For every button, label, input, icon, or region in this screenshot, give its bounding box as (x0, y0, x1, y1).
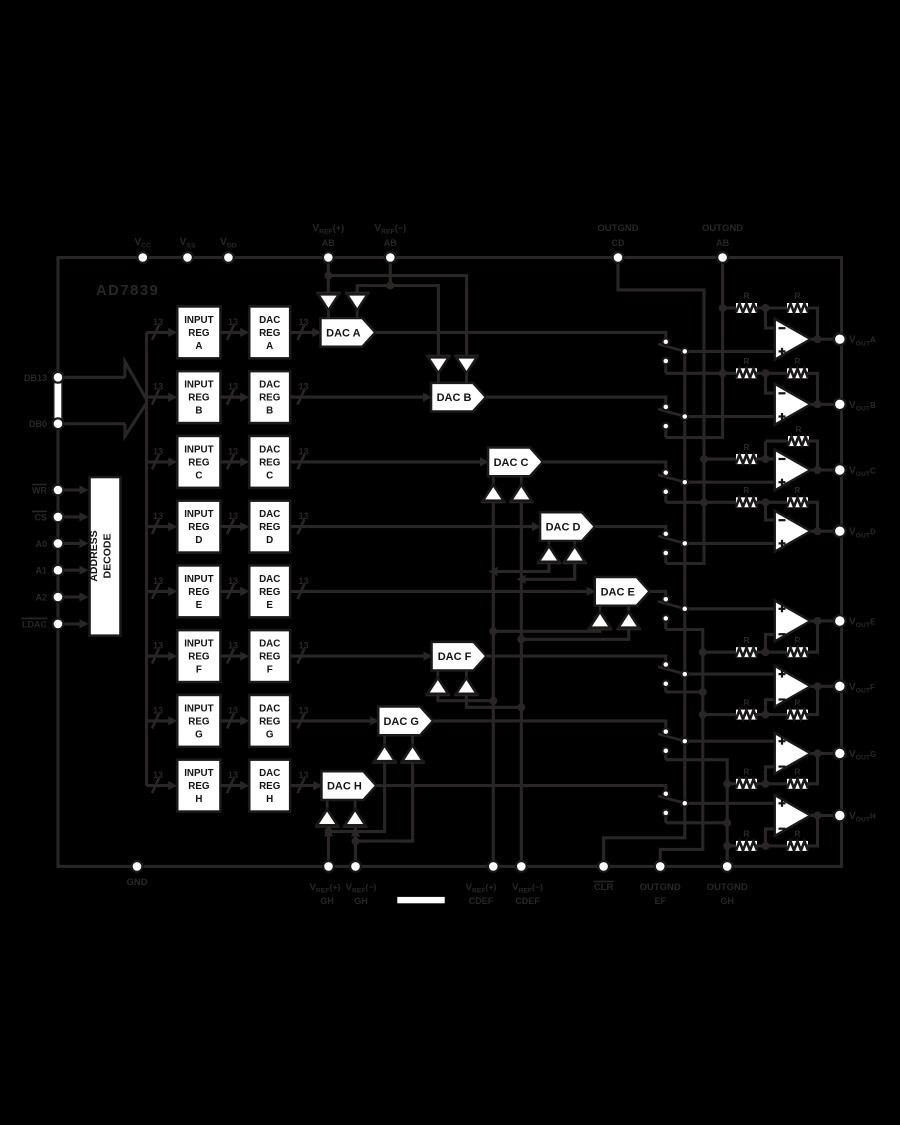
svg-text:DAC A: DAC A (326, 327, 360, 339)
svg-text:REG: REG (188, 781, 210, 792)
svg-text:E: E (196, 600, 203, 611)
svg-text:DAC: DAC (259, 315, 280, 326)
svg-text:13: 13 (153, 317, 163, 327)
svg-text:REG: REG (188, 522, 210, 533)
svg-text:13: 13 (228, 317, 238, 327)
svg-text:CS: CS (34, 512, 47, 522)
svg-text:R: R (743, 291, 749, 301)
svg-text:DAC G: DAC G (383, 716, 418, 728)
svg-text:REG: REG (259, 522, 281, 533)
svg-text:R: R (794, 767, 800, 777)
svg-text:DAC C: DAC C (494, 457, 529, 469)
svg-text:A1: A1 (35, 566, 47, 576)
svg-text:DAC: DAC (259, 444, 280, 455)
svg-text:R: R (795, 424, 801, 434)
svg-text:INPUT: INPUT (184, 703, 213, 714)
svg-text:ADDRESS: ADDRESS (88, 530, 100, 581)
svg-text:R: R (794, 485, 800, 495)
svg-text:DB13: DB13 (24, 373, 47, 383)
svg-text:AD7839: AD7839 (96, 283, 159, 299)
svg-text:REG: REG (188, 457, 210, 468)
svg-text:REG: REG (188, 652, 210, 663)
svg-text:REG: REG (259, 328, 281, 339)
svg-text:13: 13 (153, 511, 163, 521)
svg-text:REG: REG (259, 716, 281, 727)
svg-text:REG: REG (259, 457, 281, 468)
svg-text:GH: GH (720, 896, 734, 906)
svg-text:D: D (195, 535, 202, 546)
svg-text:G: G (266, 729, 274, 740)
svg-text:A2: A2 (35, 593, 47, 603)
svg-text:13: 13 (228, 446, 238, 456)
svg-text:OUTGND: OUTGND (702, 223, 743, 234)
svg-text:WR: WR (32, 486, 47, 496)
svg-text:INPUT: INPUT (184, 639, 213, 650)
svg-text:CD: CD (612, 238, 625, 248)
svg-text:13: 13 (298, 641, 308, 651)
svg-text:AB: AB (384, 238, 397, 248)
svg-text:INPUT: INPUT (184, 768, 213, 779)
svg-text:A0: A0 (35, 539, 47, 549)
svg-text:H: H (195, 794, 202, 805)
svg-text:G: G (195, 729, 203, 740)
svg-text:DAC E: DAC E (601, 586, 635, 598)
svg-text:13: 13 (228, 382, 238, 392)
svg-text:DAC D: DAC D (546, 522, 581, 534)
svg-text:DAC: DAC (259, 574, 280, 585)
svg-text:INPUT: INPUT (184, 380, 213, 391)
svg-text:GH: GH (354, 896, 368, 906)
svg-text:13: 13 (298, 770, 308, 780)
svg-text:REG: REG (259, 652, 281, 663)
svg-text:GND: GND (126, 877, 147, 888)
svg-text:D: D (266, 535, 273, 546)
svg-text:13: 13 (298, 511, 308, 521)
svg-text:DAC B: DAC B (437, 392, 472, 404)
svg-text:REG: REG (259, 587, 281, 598)
svg-text:H: H (266, 794, 273, 805)
svg-text:A: A (266, 341, 273, 352)
svg-text:INPUT: INPUT (184, 574, 213, 585)
svg-text:REG: REG (188, 716, 210, 727)
svg-text:13: 13 (298, 576, 308, 586)
svg-text:CDEF: CDEF (515, 896, 540, 906)
svg-text:R: R (743, 767, 749, 777)
svg-text:F: F (196, 665, 202, 676)
svg-text:13: 13 (153, 770, 163, 780)
svg-text:REG: REG (188, 393, 210, 404)
svg-text:13: 13 (228, 511, 238, 521)
svg-text:DAC H: DAC H (327, 781, 362, 793)
svg-text:13: 13 (153, 446, 163, 456)
svg-text:AB: AB (716, 238, 729, 248)
svg-text:13: 13 (153, 382, 163, 392)
svg-text:13: 13 (228, 705, 238, 715)
svg-text:B: B (195, 406, 202, 417)
svg-text:R: R (743, 485, 749, 495)
svg-text:R: R (743, 697, 749, 707)
svg-text:DAC: DAC (259, 703, 280, 714)
svg-text:C: C (195, 470, 202, 481)
svg-text:R: R (743, 829, 749, 839)
svg-text:13: 13 (228, 770, 238, 780)
svg-text:R: R (743, 442, 749, 452)
svg-text:R: R (794, 635, 800, 645)
svg-text:OUTGND: OUTGND (640, 882, 681, 893)
svg-text:13: 13 (298, 446, 308, 456)
svg-text:INPUT: INPUT (184, 509, 213, 520)
svg-text:13: 13 (298, 382, 308, 392)
svg-text:OUTGND: OUTGND (597, 223, 638, 234)
svg-text:DAC: DAC (259, 380, 280, 391)
svg-text:DAC: DAC (259, 509, 280, 520)
svg-text:13: 13 (153, 576, 163, 586)
svg-text:REG: REG (259, 393, 281, 404)
svg-text:AB: AB (322, 238, 335, 248)
svg-text:LDAC: LDAC (22, 619, 47, 629)
svg-text:CDEF: CDEF (469, 896, 494, 906)
svg-text:DB0: DB0 (29, 419, 47, 429)
svg-text:13: 13 (228, 641, 238, 651)
svg-text:B: B (266, 406, 273, 417)
svg-text:REG: REG (259, 781, 281, 792)
svg-text:INPUT: INPUT (184, 315, 213, 326)
svg-text:A: A (195, 341, 202, 352)
svg-text:R: R (794, 829, 800, 839)
svg-text:DAC: DAC (259, 768, 280, 779)
svg-text:R: R (743, 356, 749, 366)
svg-text:13: 13 (153, 705, 163, 715)
svg-text:13: 13 (153, 641, 163, 651)
svg-text:INPUT: INPUT (184, 444, 213, 455)
svg-text:R: R (794, 291, 800, 301)
svg-text:R: R (794, 697, 800, 707)
svg-text:13: 13 (298, 705, 308, 715)
svg-text:DAC F: DAC F (438, 651, 472, 663)
svg-text:13: 13 (228, 576, 238, 586)
svg-text:E: E (266, 600, 273, 611)
svg-text:13: 13 (298, 317, 308, 327)
svg-text:REG: REG (188, 328, 210, 339)
svg-text:OUTGND: OUTGND (707, 882, 748, 893)
svg-text:C: C (266, 470, 273, 481)
svg-text:REG: REG (188, 587, 210, 598)
svg-text:GH: GH (320, 896, 334, 906)
svg-text:EF: EF (654, 896, 666, 906)
svg-text:R: R (794, 356, 800, 366)
svg-text:DAC: DAC (259, 639, 280, 650)
svg-text:CLR: CLR (594, 882, 614, 893)
svg-text:F: F (267, 665, 273, 676)
svg-text:DECODE: DECODE (102, 534, 114, 579)
svg-text:R: R (743, 635, 749, 645)
